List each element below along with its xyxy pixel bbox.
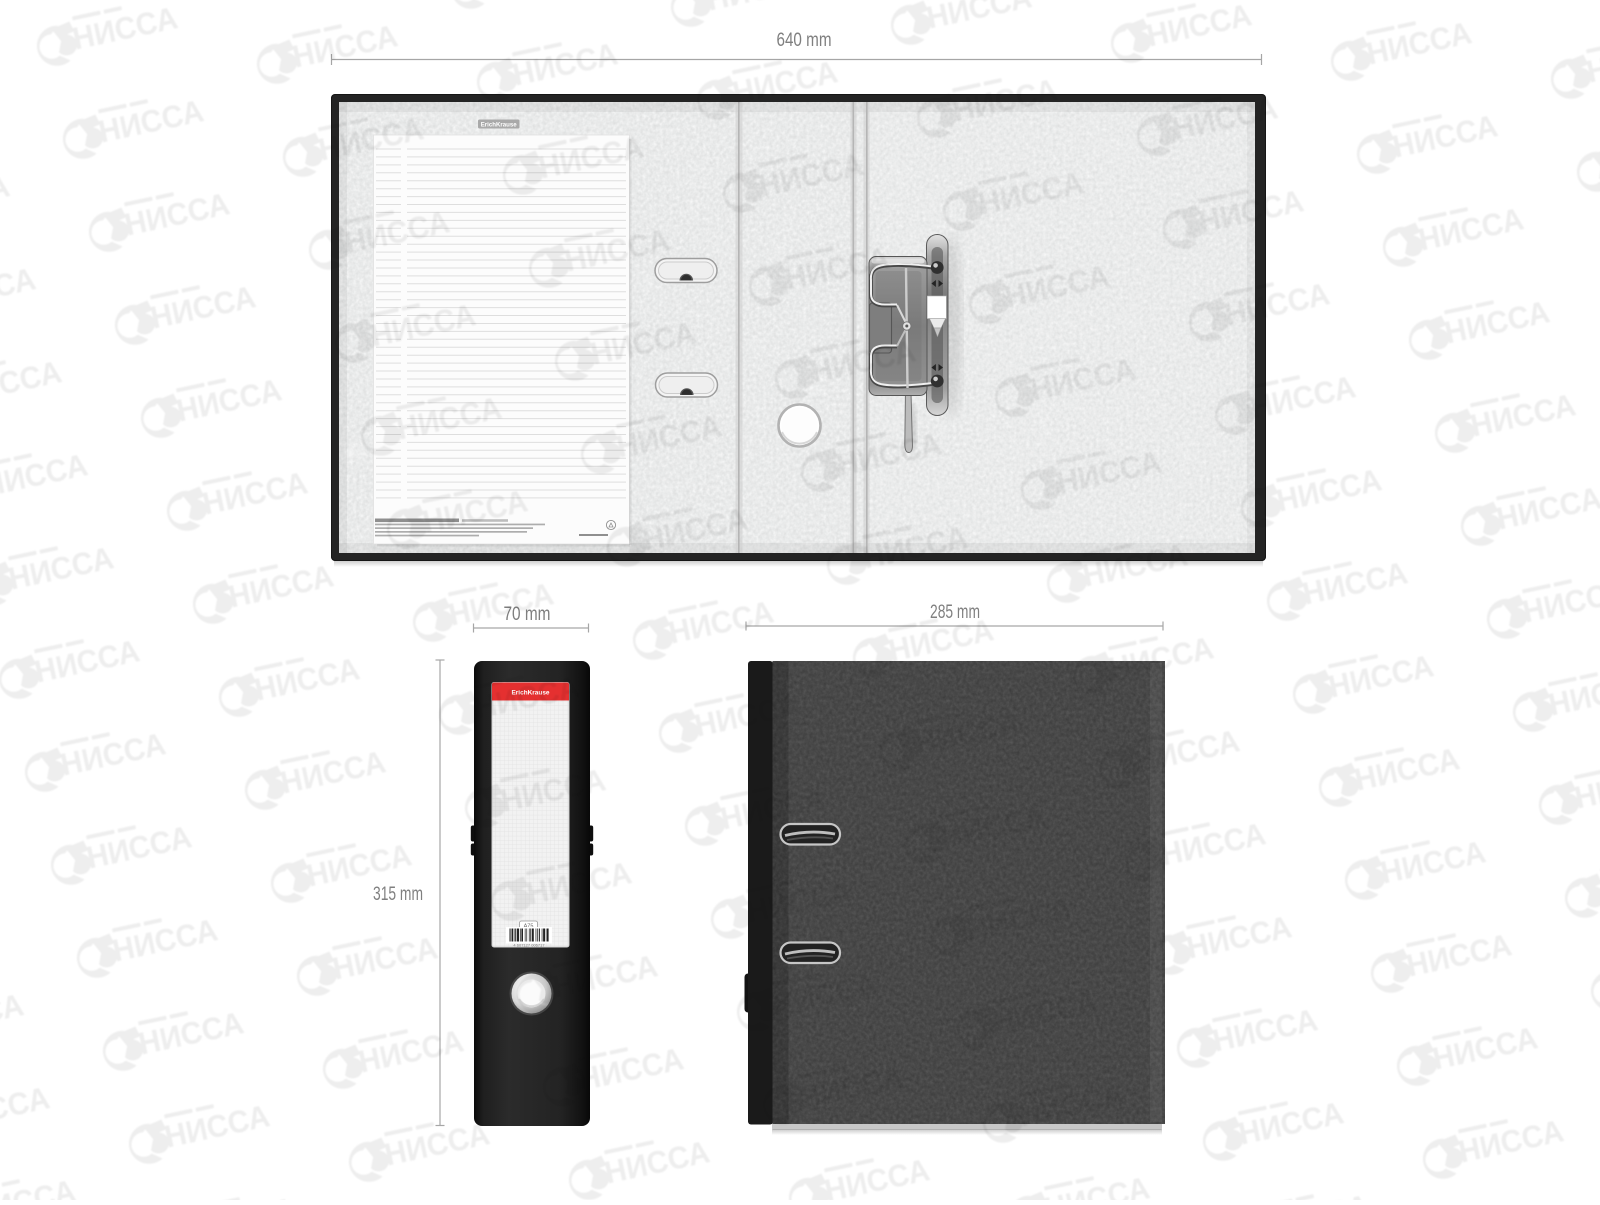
svg-text:4 607127 006717: 4 607127 006717	[513, 943, 545, 948]
svg-text:315 mm: 315 mm	[373, 884, 423, 905]
svg-text:640 mm: 640 mm	[777, 30, 832, 51]
svg-text:ErichKrause: ErichKrause	[481, 122, 518, 129]
